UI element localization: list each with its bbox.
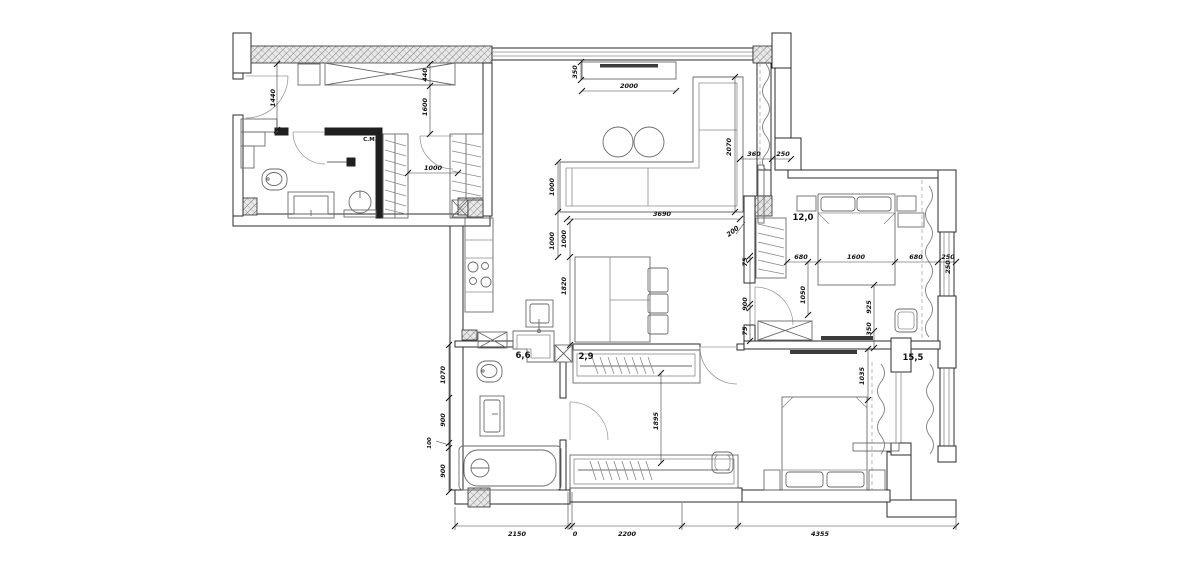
dim-label: 2200 [618,530,637,538]
bath1-side-wall [376,134,383,218]
dim-label: 4355 [811,530,830,538]
dim-label: 680 [909,253,923,261]
dim-label: 1600 [847,253,866,261]
dim-label: 250 [776,150,790,158]
dim-label: 350 [865,322,873,336]
kitchen-wall-hatch [462,330,477,340]
room-area-bedroom-small: 12,0 [793,213,814,223]
left-lower-wall [450,222,463,490]
washing-machine-label: С.М. [363,137,377,143]
column-top-left [233,33,251,73]
column-hatched-top-right [753,46,772,63]
dim-label: 1000 [548,177,556,196]
entry-block-bottom-wall [233,214,490,226]
dim-label: 900 [439,464,447,478]
right-wall-pier2 [938,296,956,368]
top-wall-hatched [251,46,492,63]
right-pier-upper [775,68,791,138]
room-area-wardrobe: 2,9 [578,352,593,362]
left-upper-wall [233,115,243,216]
tv-screen [600,64,658,68]
dim-label: 1035 [858,366,866,385]
room-area-bedroom-large: 15,5 [903,353,924,363]
dim-label: 2070 [725,137,733,156]
bath1-top-wall [325,128,382,135]
floor-plan-drawing: 1440 440 1600 1000 С.М. 350 2000 1000 10… [0,0,1200,584]
column-top-right [772,33,791,68]
dim-label: 1000 [560,229,568,248]
bath1-partition-stub [347,158,355,166]
dim-label: 1895 [652,411,660,430]
dim-label: 900 [439,413,447,427]
dim-label: 360 [747,150,761,158]
bottom-right-wall [887,500,956,517]
floor-plan-canvas: 1440 440 1600 1000 С.М. 350 2000 1000 10… [0,0,1200,584]
dim-label: 440 [421,68,429,82]
dim-label: 1600 [421,97,429,116]
dim-label: 0 [573,530,578,538]
dim-label: 1440 [269,88,277,107]
left-wall-stub [233,73,243,79]
room-area-bathroom: 6,6 [515,351,530,361]
dim-label: 2000 [620,82,639,90]
bath2-right-wall-upper [560,362,566,398]
closet-hatch-column [468,200,483,217]
dim-label: 75 [741,326,749,336]
hall-bottom-wall [570,488,742,502]
bedroom2-door-jamb [737,344,744,350]
column-hatched-bottom [468,488,490,507]
dim-label: 2150 [508,530,527,538]
bed2-window-pier-bottom [891,443,911,455]
dim-label: 250 [944,260,952,274]
tv-bedroom2 [790,350,857,354]
dim-label: 1000 [424,164,443,172]
entry-living-wall [483,63,492,216]
dim-label: 1000 [548,231,556,250]
dim-label: 925 [865,300,873,314]
right-wall-pier3 [938,446,956,462]
dim-label: 75 [741,257,749,267]
bedroom1-left-wall-upper [744,196,755,283]
right-wall-pier1 [938,170,956,232]
dim-label: 680 [794,253,808,261]
dim-label: 350 [571,65,579,79]
dim-label: 3690 [653,210,672,218]
wardrobe-top-wall [573,344,700,350]
dim-label: 1070 [439,365,447,384]
dim-label: 900 [741,297,749,311]
dim-label: 1820 [560,276,568,295]
bedroom2-bottom-wall [740,490,890,502]
column-hatched-bedroom1 [753,196,772,216]
top-window-frame [492,48,753,60]
dim-label: 250 [941,253,955,261]
bedroom1-top-wall [788,170,940,178]
dim-label: 100 [427,437,433,449]
right-window2-frame [940,368,954,446]
dim-label: 1050 [799,285,807,304]
